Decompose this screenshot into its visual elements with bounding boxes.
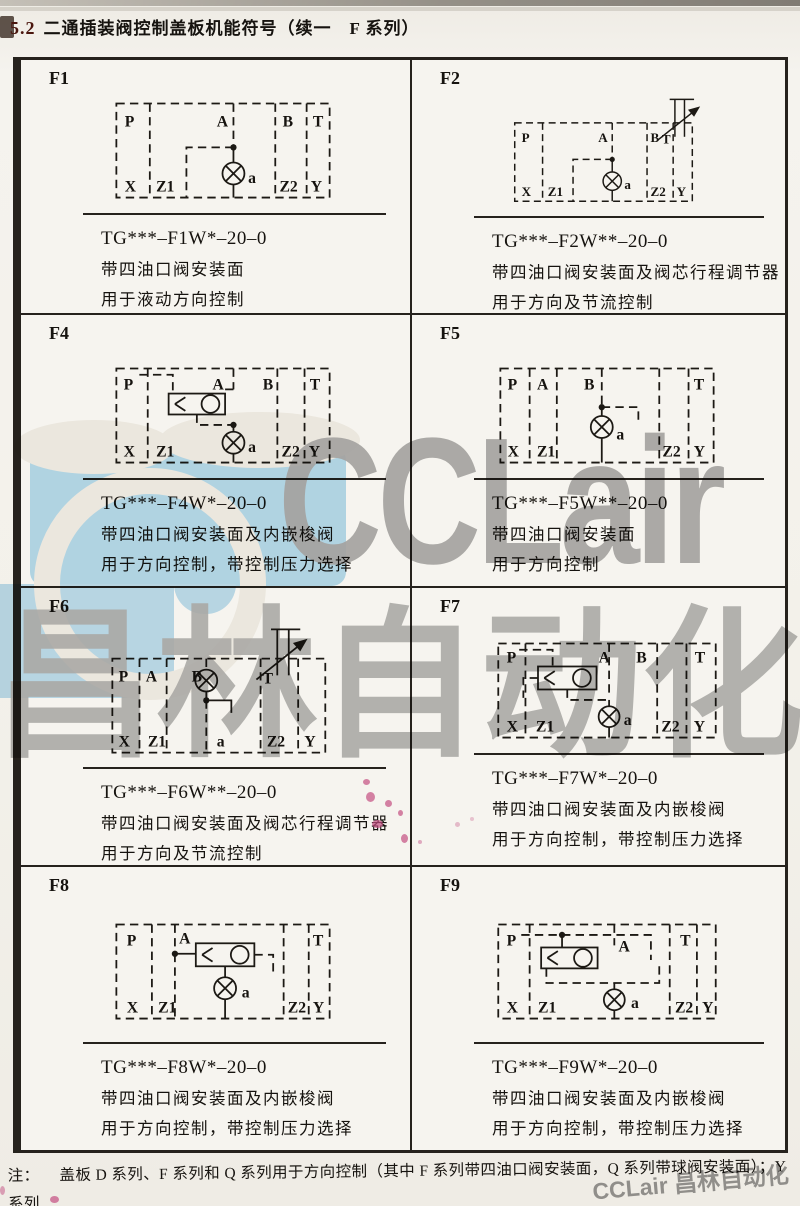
port-p-label: P — [118, 669, 128, 686]
red-ink-mark — [363, 779, 370, 785]
diagram-f2: P A B T X Z1 a Z2 Y — [488, 95, 726, 208]
red-ink-mark — [418, 840, 422, 844]
cell-label-f7: F7 — [440, 596, 780, 617]
scan-streak — [0, 7, 800, 11]
port-a-label: A — [599, 649, 611, 666]
scan-edge-shadow — [0, 0, 800, 6]
port-t-label: T — [309, 376, 320, 393]
cell-divider-line — [474, 478, 764, 480]
cell-label-f2: F2 — [440, 68, 780, 89]
red-ink-mark — [401, 834, 408, 843]
cell-label-f4: F4 — [49, 323, 402, 344]
port-pilot-a-label: a — [241, 985, 249, 1002]
scanned-catalog-page: 5.2二通插装阀控制盖板机能符号（续一 F 系列） F1 — [0, 0, 800, 1206]
diagram-f8: P A T X Z1 a Z2 Y — [108, 916, 338, 1026]
red-ink-mark — [470, 817, 474, 821]
desc2-f8: 用于方向控制，带控制压力选择 — [101, 1115, 402, 1139]
section-number: 5.2 — [10, 18, 36, 38]
port-a-label: A — [216, 113, 228, 130]
red-ink-mark — [398, 810, 403, 816]
port-y-label: Y — [694, 718, 706, 735]
port-z1-label: Z1 — [538, 999, 556, 1016]
port-z2-label: Z2 — [287, 999, 305, 1016]
port-p-label: P — [126, 932, 136, 949]
pilot-valve-symbol — [214, 977, 236, 999]
port-pilot-a-label: a — [616, 427, 624, 444]
port-t-label: T — [662, 132, 671, 147]
cell-f5: F5 P A B T X — [412, 315, 788, 588]
port-z2-label: Z2 — [279, 178, 297, 195]
port-b-label: B — [651, 130, 660, 145]
cell-f1: F1 P A B T X — [21, 60, 412, 315]
cell-divider-line — [474, 1042, 764, 1044]
port-b-label: B — [636, 649, 647, 666]
pilot-valve-symbol — [222, 163, 244, 185]
port-t-label: T — [694, 376, 705, 393]
port-x-label: X — [123, 443, 135, 460]
port-z1-label: Z1 — [536, 718, 554, 735]
cell-divider-line — [83, 213, 386, 215]
port-y-label: Y — [677, 184, 687, 199]
desc2-f6: 用于方向及节流控制 — [101, 840, 402, 864]
port-z1-label: Z1 — [537, 443, 555, 460]
red-ink-mark — [366, 792, 375, 802]
desc2-f5: 用于方向控制 — [492, 551, 780, 575]
desc2-f9: 用于方向控制，带控制压力选择 — [492, 1115, 780, 1139]
diagram-f7: P A B T X Z1 a Z2 Y — [492, 635, 722, 745]
cell-divider-line — [83, 767, 386, 769]
desc1-f6: 带四油口阀安装面及阀芯行程调节器 — [101, 810, 402, 834]
desc1-f9: 带四油口阀安装面及内嵌梭阀 — [492, 1085, 780, 1109]
desc2-f1: 用于液动方向控制 — [101, 286, 402, 310]
diagram-f9: P A T X Z1 a Z2 Y — [492, 916, 722, 1026]
port-a-label: A — [179, 930, 191, 947]
port-z2-label: Z2 — [651, 184, 666, 199]
cell-label-f9: F9 — [440, 875, 780, 896]
port-p-label: P — [522, 130, 530, 145]
port-p-label: P — [507, 649, 517, 666]
diagram-f6: P A B T X Z1 a Z2 Y — [104, 623, 342, 759]
port-y-label: Y — [304, 733, 315, 750]
port-x-label: X — [508, 443, 520, 460]
cell-label-f1: F1 — [49, 68, 402, 89]
port-y-label: Y — [702, 999, 714, 1016]
port-t-label: T — [312, 932, 323, 949]
desc2-f4: 用于方向控制，带控制压力选择 — [101, 551, 402, 575]
function-symbol-table: F1 P A B T X — [13, 57, 788, 1153]
port-t-label: T — [680, 932, 691, 949]
footnote-line1: 盖板 D 系列、F 系列和 Q 系列用于方向控制（其中 F 系列带四油口阀安装面… — [8, 1158, 786, 1206]
pilot-valve-symbol — [599, 706, 620, 727]
port-a-label: A — [145, 669, 157, 686]
cell-divider-line — [83, 1042, 386, 1044]
port-z2-label: Z2 — [661, 718, 679, 735]
diagram-f5: P A B T X Z1 a Z2 Y — [492, 360, 722, 470]
page-title: 5.2二通插装阀控制盖板机能符号（续一 F 系列） — [10, 14, 420, 39]
port-x-label: X — [522, 184, 532, 199]
port-x-label: X — [118, 733, 130, 750]
port-pilot-a-label: a — [624, 177, 631, 192]
desc1-f5: 带四油口阀安装面 — [492, 521, 780, 545]
shuttle-valve-symbol — [168, 394, 224, 415]
model-code-f8: TG***–F8W*–20–0 — [101, 1057, 402, 1079]
port-z2-label: Z2 — [281, 443, 299, 460]
port-z1-label: Z1 — [158, 999, 176, 1016]
port-y-label: Y — [308, 443, 320, 460]
port-a-label: A — [619, 939, 631, 956]
port-a-label: A — [598, 130, 608, 145]
cell-f4: F4 — [21, 315, 412, 588]
cell-label-f5: F5 — [440, 323, 780, 344]
port-z1-label: Z1 — [548, 184, 563, 199]
shuttle-valve-symbol — [538, 666, 597, 689]
desc1-f1: 带四油口阀安装面 — [101, 256, 402, 280]
port-t-label: T — [262, 671, 273, 688]
port-b-label: B — [584, 376, 595, 393]
port-y-label: Y — [312, 999, 324, 1016]
cell-f9: F9 — [412, 867, 788, 1150]
footnote-label: 注： — [8, 1167, 40, 1184]
shuttle-valve-symbol — [195, 943, 254, 966]
port-y-label: Y — [310, 178, 322, 195]
model-code-f1: TG***–F1W*–20–0 — [101, 228, 402, 250]
desc1-f2: 带四油口阀安装面及阀芯行程调节器 — [492, 259, 780, 283]
cell-label-f6: F6 — [49, 596, 402, 617]
port-t-label: T — [695, 649, 706, 666]
port-pilot-a-label: a — [248, 439, 256, 456]
desc2-f7: 用于方向控制，带控制压力选择 — [492, 826, 780, 850]
port-p-label: P — [508, 376, 518, 393]
port-pilot-a-label: a — [624, 712, 632, 729]
cell-f7: F7 — [412, 588, 788, 867]
port-a-label: A — [212, 376, 224, 393]
pilot-valve-symbol — [604, 989, 625, 1010]
port-p-label: P — [124, 113, 134, 130]
footnote: 注：盖板 D 系列、F 系列和 Q 系列用于方向控制（其中 F 系列带四油口阀安… — [8, 1153, 795, 1206]
cell-divider-line — [83, 478, 386, 480]
cell-label-f8: F8 — [49, 875, 402, 896]
pilot-valve-symbol — [591, 416, 613, 438]
port-p-label: P — [123, 376, 133, 393]
cell-divider-line — [474, 753, 764, 755]
port-a-label: A — [537, 376, 549, 393]
port-t-label: T — [312, 113, 323, 130]
port-z1-label: Z1 — [156, 443, 174, 460]
port-x-label: X — [126, 999, 138, 1016]
port-x-label: X — [507, 999, 519, 1016]
port-pilot-a-label: a — [631, 995, 639, 1012]
port-z2-label: Z2 — [675, 999, 693, 1016]
diagram-f4: P A B T X Z1 a Z2 Y — [108, 360, 338, 470]
port-z2-label: Z2 — [266, 733, 284, 750]
desc2-f2: 用于方向及节流控制 — [492, 289, 780, 313]
diagram-f1: P A B T X Z1 a Z2 Y — [108, 95, 338, 205]
shuttle-valve-symbol — [541, 947, 597, 968]
port-z1-label: Z1 — [147, 733, 165, 750]
port-y-label: Y — [694, 443, 706, 460]
desc1-f4: 带四油口阀安装面及内嵌梭阀 — [101, 521, 402, 545]
model-code-f7: TG***–F7W*–20–0 — [492, 768, 780, 790]
port-z1-label: Z1 — [156, 178, 174, 195]
pilot-valve-symbol — [603, 172, 621, 190]
red-ink-mark — [50, 1196, 59, 1203]
section-title: 二通插装阀控制盖板机能符号（续一 F 系列） — [44, 19, 420, 38]
cell-divider-line — [474, 216, 764, 218]
port-b-label: B — [191, 669, 201, 686]
cell-f2: F2 — [412, 60, 788, 315]
desc1-f7: 带四油口阀安装面及内嵌梭阀 — [492, 796, 780, 820]
cell-f8: F8 — [21, 867, 412, 1150]
pilot-valve-symbol — [222, 432, 244, 454]
port-pilot-a-label: a — [248, 170, 256, 187]
red-ink-mark — [455, 822, 460, 827]
port-b-label: B — [262, 376, 273, 393]
port-b-label: B — [282, 113, 293, 130]
red-ink-mark — [385, 800, 392, 807]
port-x-label: X — [124, 178, 136, 195]
model-code-f6: TG***–F6W**–20–0 — [101, 782, 402, 804]
port-z2-label: Z2 — [662, 443, 680, 460]
port-pilot-a-label: a — [216, 733, 224, 750]
model-code-f5: TG***–F5W**–20–0 — [492, 493, 780, 515]
red-ink-mark — [372, 820, 383, 828]
port-x-label: X — [507, 718, 519, 735]
cell-f6: F6 — [21, 588, 412, 867]
model-code-f4: TG***–F4W*–20–0 — [101, 493, 402, 515]
model-code-f9: TG***–F9W*–20–0 — [492, 1057, 780, 1079]
desc1-f8: 带四油口阀安装面及内嵌梭阀 — [101, 1085, 402, 1109]
red-ink-mark — [0, 1186, 5, 1195]
model-code-f2: TG***–F2W**–20–0 — [492, 231, 780, 253]
port-p-label: P — [507, 932, 517, 949]
